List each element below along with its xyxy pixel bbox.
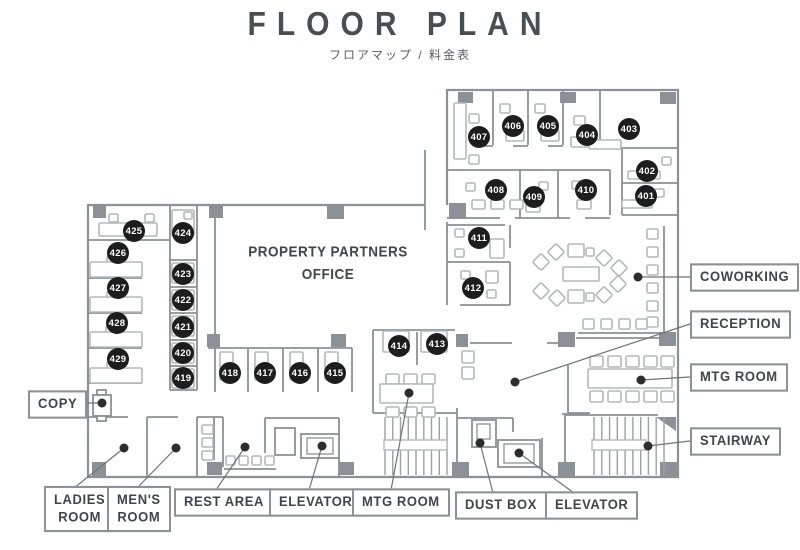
room-badge-421: 421 [172, 316, 194, 338]
stairway-right-pattern [592, 417, 664, 475]
label-ladies-room: LADIES ROOM [44, 486, 115, 532]
room-badge-426: 426 [107, 242, 129, 264]
room-badge-425: 425 [123, 220, 145, 242]
label-mtg-room-right: MTG ROOM [690, 363, 788, 391]
room-badge-429: 429 [107, 348, 129, 370]
room-badge-428: 428 [106, 312, 128, 334]
room-badge-407: 407 [468, 126, 490, 148]
room-badge-422: 422 [172, 289, 194, 311]
room-badge-415: 415 [324, 362, 346, 384]
floor-plan-page: FLOOR PLAN フロアマップ / 料金表 [0, 0, 800, 550]
room-badge-401: 401 [635, 185, 657, 207]
room-badge-411: 411 [468, 227, 490, 249]
room-badge-424: 424 [172, 222, 194, 244]
office-area-label: PROPERTY PARTNERS OFFICE [238, 241, 418, 286]
stairway-left-pattern [384, 417, 447, 475]
room-badge-418: 418 [219, 362, 241, 384]
room-badge-417: 417 [254, 362, 276, 384]
room-badge-402: 402 [636, 160, 658, 182]
room-badge-413: 413 [426, 333, 448, 355]
room-badge-408: 408 [485, 179, 507, 201]
label-reception: RECEPTION [690, 310, 791, 338]
label-mens-room: MEN'S ROOM [107, 486, 171, 532]
room-badge-404: 404 [576, 124, 598, 146]
label-stairway: STAIRWAY [690, 427, 781, 455]
room-badge-409: 409 [523, 186, 545, 208]
room-badge-406: 406 [502, 115, 524, 137]
room-badge-419: 419 [172, 367, 194, 389]
room-badge-410: 410 [575, 179, 597, 201]
label-rest-area: REST AREA [174, 488, 274, 516]
room-badge-412: 412 [462, 277, 484, 299]
room-badge-416: 416 [289, 362, 311, 384]
label-coworking: COWORKING [690, 263, 799, 291]
label-copy: COPY [28, 390, 87, 418]
room-badge-427: 427 [107, 277, 129, 299]
room-badge-420: 420 [172, 342, 194, 364]
label-elevator-right: ELEVATOR [545, 491, 638, 519]
room-badge-414: 414 [388, 335, 410, 357]
label-elevator-left: ELEVATOR [269, 488, 362, 516]
room-badge-405: 405 [537, 115, 559, 137]
label-dust-box: DUST BOX [455, 491, 547, 519]
room-badge-403: 403 [618, 118, 640, 140]
room-badge-423: 423 [172, 263, 194, 285]
label-mtg-room-bottom: MTG ROOM [352, 488, 450, 516]
